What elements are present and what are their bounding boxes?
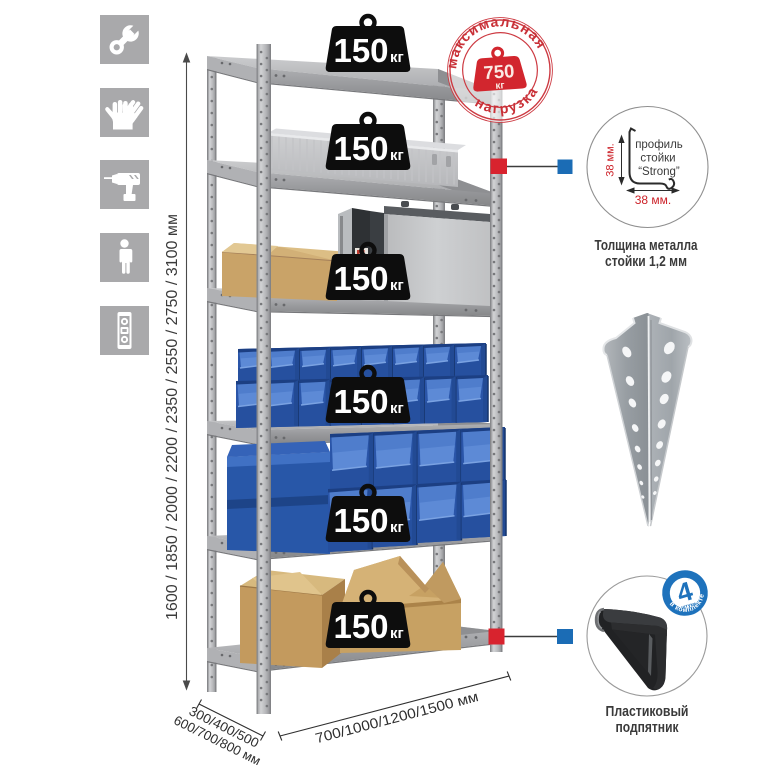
svg-text:профиль: профиль bbox=[635, 139, 683, 151]
svg-text:кг: кг bbox=[390, 400, 404, 417]
svg-text:1600 / 1850 / 2000 / 2200 / 23: 1600 / 1850 / 2000 / 2200 / 2350 / 2550 … bbox=[164, 214, 181, 620]
svg-text:кг: кг bbox=[390, 49, 404, 66]
svg-text:кг: кг bbox=[390, 625, 404, 642]
svg-text:38 мм.: 38 мм. bbox=[635, 193, 672, 207]
svg-text:кг: кг bbox=[390, 519, 404, 536]
svg-text:“Strong”: “Strong” bbox=[638, 166, 680, 178]
svg-text:150: 150 bbox=[333, 32, 388, 69]
svg-text:150: 150 bbox=[333, 502, 388, 539]
svg-text:кг: кг bbox=[390, 147, 404, 164]
svg-text:38 мм.: 38 мм. bbox=[605, 143, 617, 176]
svg-text:Толщина металла: Толщина металла bbox=[595, 238, 699, 254]
svg-text:кг: кг bbox=[495, 80, 505, 92]
svg-text:стойки: стойки bbox=[640, 153, 675, 165]
svg-text:150: 150 bbox=[333, 383, 388, 420]
svg-text:Пластиковый: Пластиковый bbox=[606, 704, 689, 720]
svg-text:кг: кг bbox=[390, 277, 404, 294]
svg-text:150: 150 bbox=[333, 130, 388, 167]
svg-text:подпятник: подпятник bbox=[616, 720, 680, 736]
svg-text:150: 150 bbox=[333, 260, 388, 297]
svg-text:150: 150 bbox=[333, 608, 388, 645]
svg-text:стойки 1,2 мм: стойки 1,2 мм bbox=[605, 254, 687, 270]
